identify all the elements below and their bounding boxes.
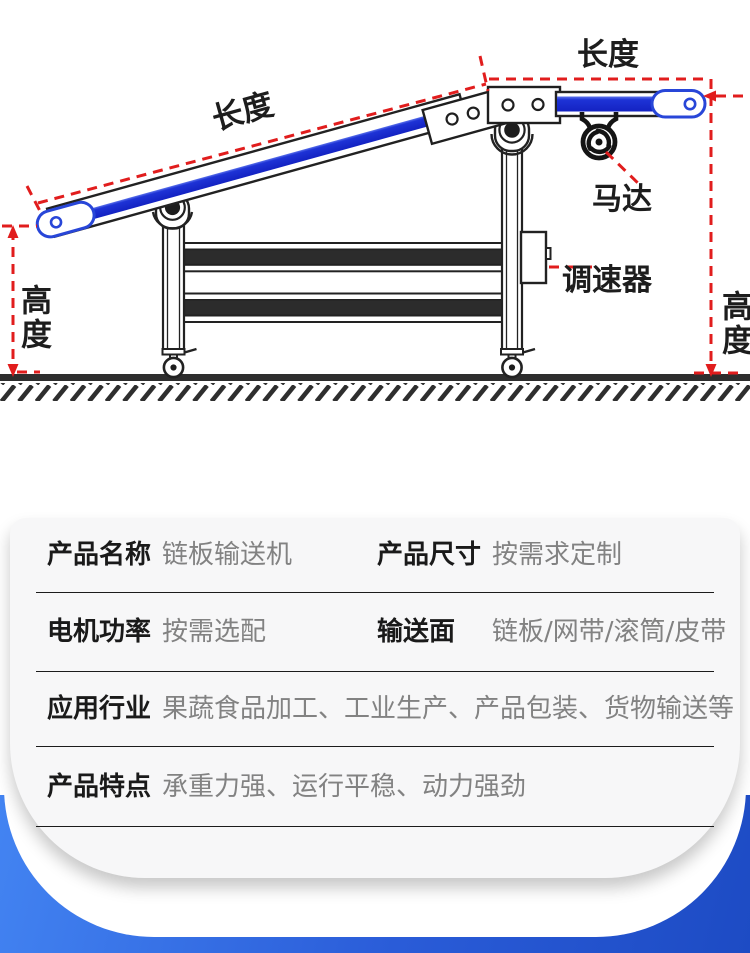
length-label-top: 长度 <box>577 40 639 71</box>
left-leg <box>163 222 184 351</box>
height-label-right: 高度 <box>718 290 749 358</box>
spec-label: 电机功率 <box>47 619 151 645</box>
conveyor-technical-diagram: 长度 长度 马达 调速器 高度 高度 <box>0 0 750 470</box>
spec-value: 链板输送机 <box>162 542 292 568</box>
speed-controller-box <box>521 232 551 283</box>
height-label-left: 高度 <box>17 284 48 352</box>
spec-card: 产品名称 链板输送机 产品尺寸 按需求定制 电机功率 按需选配 输送面 链板/网… <box>10 518 740 878</box>
motor-icon <box>582 112 616 158</box>
motor-label: 马达 <box>592 185 652 215</box>
spec-value: 承重力强、运行平稳、动力强劲 <box>162 774 526 800</box>
ground-hatching <box>0 383 750 401</box>
horizontal-joint-plate <box>488 87 560 123</box>
caster-wheel-icon <box>501 349 535 377</box>
spec-value: 果蔬食品加工、工业生产、产品包装、货物输送等 <box>162 696 734 722</box>
product-infographic: 长度 长度 马达 调速器 高度 高度 产品名称 链板输送机 产品尺寸 按需求定制… <box>0 0 750 953</box>
spec-label: 产品特点 <box>47 774 151 800</box>
spec-row-features: 产品特点 承重力强、运行平稳、动力强劲 <box>36 747 714 827</box>
ground-line <box>0 374 750 401</box>
spec-value: 按需求定制 <box>492 542 622 568</box>
spec-value: 链板/网带/滚筒/皮带 <box>492 619 726 645</box>
horizontal-belt-section <box>556 91 705 118</box>
caster-wheel-icon <box>163 349 197 377</box>
speed-controller-label: 调速器 <box>562 266 652 296</box>
spec-row-applications: 应用行业 果蔬食品加工、工业生产、产品包装、货物输送等 <box>36 672 714 747</box>
spec-row-motor-power: 电机功率 按需选配 输送面 链板/网带/滚筒/皮带 <box>36 593 714 672</box>
spec-label: 输送面 <box>377 619 455 645</box>
right-leg <box>502 146 522 351</box>
spec-label: 应用行业 <box>47 696 151 722</box>
spec-row-product-name: 产品名称 链板输送机 产品尺寸 按需求定制 <box>36 518 714 593</box>
spec-value: 按需选配 <box>162 619 266 645</box>
frame-cross-rails <box>181 243 505 322</box>
belt-blue-stripe <box>81 105 466 221</box>
tail-roller <box>34 199 97 240</box>
spec-label: 产品名称 <box>47 542 151 568</box>
spec-label: 产品尺寸 <box>377 542 481 568</box>
head-roller <box>652 91 705 118</box>
motor-leader-line <box>606 152 641 186</box>
